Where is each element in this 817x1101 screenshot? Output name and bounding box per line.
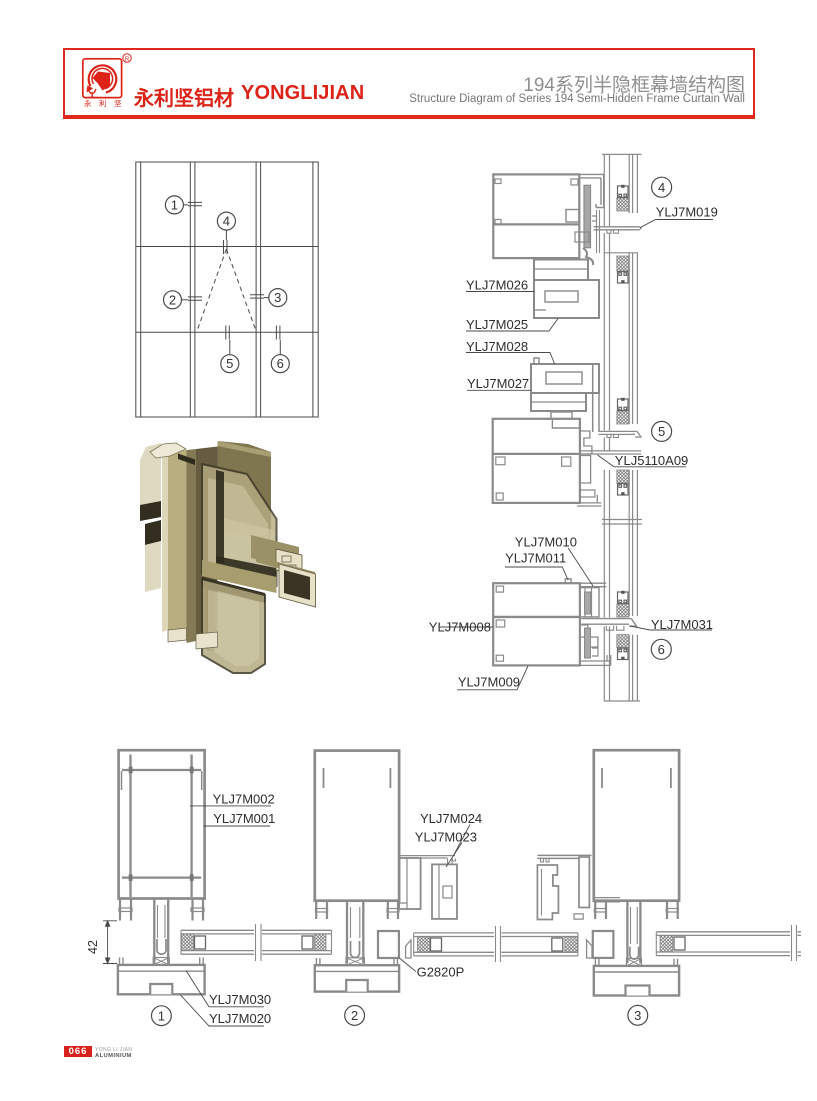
svg-text:YLJ7M008: YLJ7M008 xyxy=(429,620,491,635)
svg-text:ALUMINIUM: ALUMINIUM xyxy=(95,1053,132,1059)
svg-text:YLJ7M002: YLJ7M002 xyxy=(213,792,275,807)
svg-text:YLJ5110A09: YLJ5110A09 xyxy=(615,453,689,468)
svg-text:YLJ7M010: YLJ7M010 xyxy=(515,535,577,550)
svg-text:2: 2 xyxy=(169,292,176,307)
svg-text:YLJ7M023: YLJ7M023 xyxy=(415,829,477,844)
svg-text:YLJ7M001: YLJ7M001 xyxy=(213,811,275,826)
svg-text:YLJ7M027: YLJ7M027 xyxy=(467,376,529,391)
svg-text:YLJ7M011: YLJ7M011 xyxy=(505,551,566,566)
svg-text:永利坚: 永利坚 xyxy=(84,98,129,108)
svg-text:4: 4 xyxy=(658,180,665,195)
svg-text:YLJ7M026: YLJ7M026 xyxy=(466,278,528,293)
svg-text:YONG LI JIAN: YONG LI JIAN xyxy=(95,1047,132,1053)
svg-text:YLJ7M024: YLJ7M024 xyxy=(420,811,482,826)
svg-text:YLJ7M025: YLJ7M025 xyxy=(466,317,528,332)
svg-text:YLJ7M019: YLJ7M019 xyxy=(656,205,718,220)
svg-text:YLJ7M028: YLJ7M028 xyxy=(466,339,528,354)
svg-text:R: R xyxy=(125,57,130,63)
svg-text:YLJ7M031: YLJ7M031 xyxy=(651,617,713,632)
svg-text:YLJ7M030: YLJ7M030 xyxy=(209,992,271,1007)
svg-text:3: 3 xyxy=(634,1008,641,1023)
svg-text:YLJ7M020: YLJ7M020 xyxy=(209,1011,271,1026)
svg-text:G2820P: G2820P xyxy=(417,964,465,979)
svg-text:6: 6 xyxy=(658,642,665,657)
svg-text:6: 6 xyxy=(277,356,284,371)
svg-text:5: 5 xyxy=(226,356,233,371)
svg-text:1: 1 xyxy=(158,1008,165,1023)
svg-text:42: 42 xyxy=(86,940,100,954)
svg-text:YLJ7M009: YLJ7M009 xyxy=(458,675,520,690)
svg-text:1: 1 xyxy=(171,197,178,212)
svg-text:5: 5 xyxy=(658,424,665,439)
svg-text:4: 4 xyxy=(223,214,230,229)
svg-text:2: 2 xyxy=(351,1008,358,1023)
svg-text:3: 3 xyxy=(274,290,281,305)
